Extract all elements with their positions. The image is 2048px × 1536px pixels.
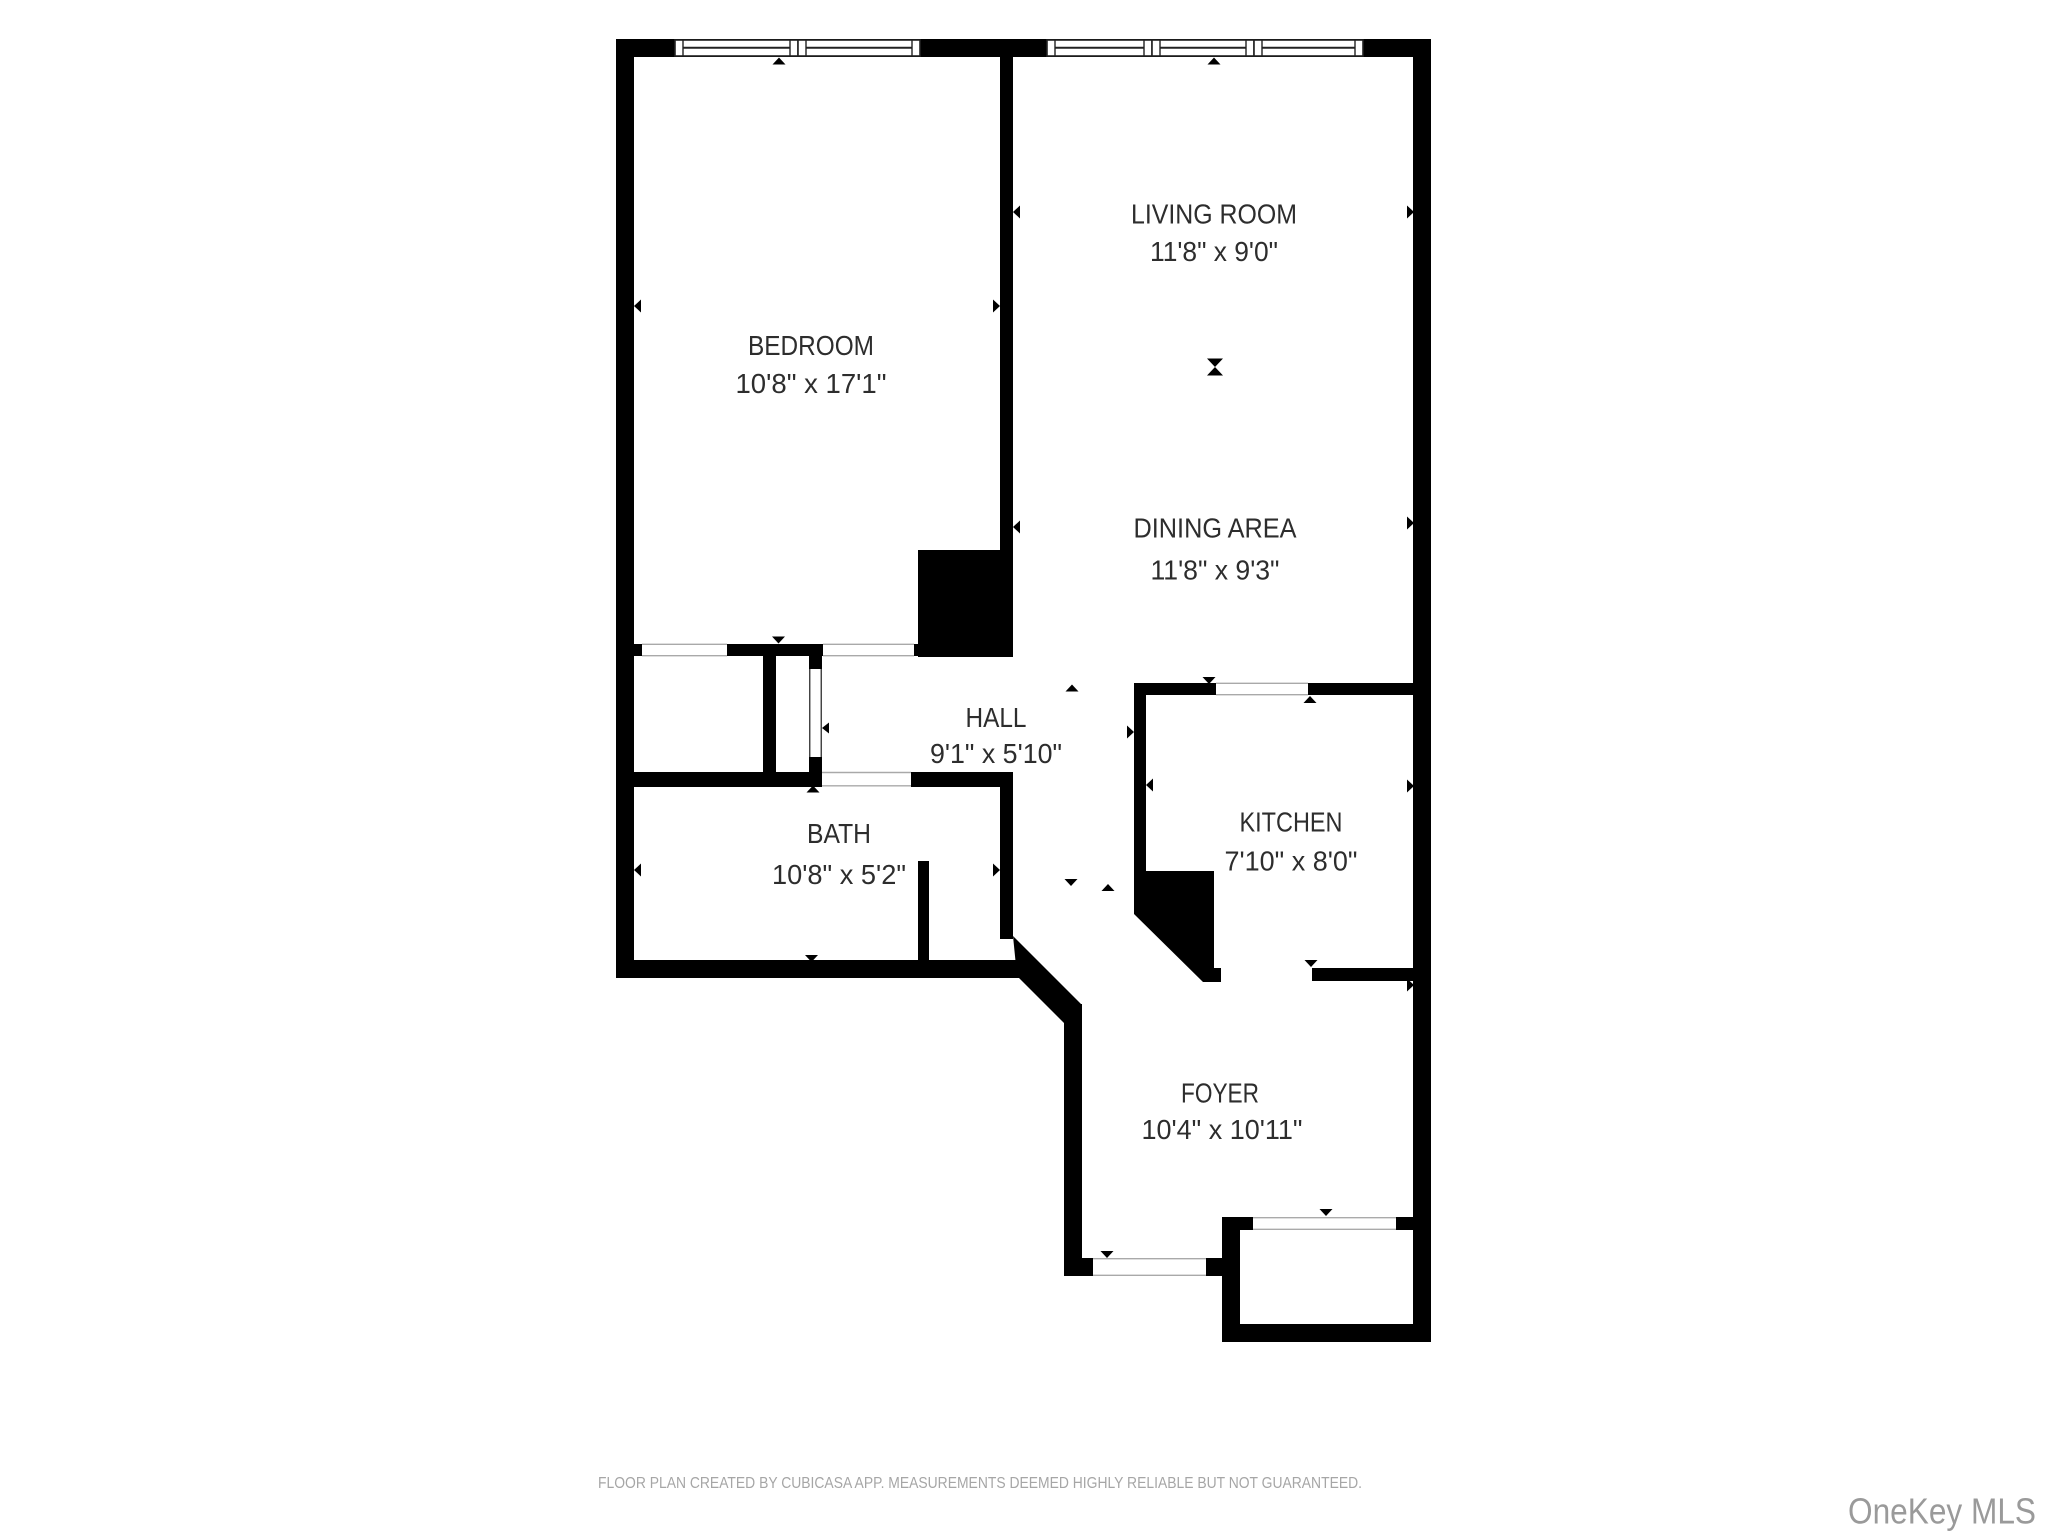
svg-text:10'8" x 5'2": 10'8" x 5'2" xyxy=(772,859,906,890)
svg-text:11'8" x 9'0": 11'8" x 9'0" xyxy=(1150,236,1278,267)
svg-text:FOYER: FOYER xyxy=(1181,1078,1259,1109)
svg-text:HALL: HALL xyxy=(966,702,1027,733)
svg-text:BATH: BATH xyxy=(807,818,871,849)
svg-text:FLOOR PLAN CREATED BY CUBICASA: FLOOR PLAN CREATED BY CUBICASA APP. MEAS… xyxy=(598,1475,1362,1492)
svg-text:BEDROOM: BEDROOM xyxy=(748,330,874,361)
svg-text:DINING AREA: DINING AREA xyxy=(1134,513,1297,544)
svg-text:KITCHEN: KITCHEN xyxy=(1240,807,1343,838)
svg-text:LIVING ROOM: LIVING ROOM xyxy=(1131,199,1297,230)
svg-text:10'4" x 10'11": 10'4" x 10'11" xyxy=(1142,1114,1303,1145)
svg-text:OneKey MLS: OneKey MLS xyxy=(1848,1491,2036,1532)
svg-text:11'8" x 9'3": 11'8" x 9'3" xyxy=(1151,555,1280,586)
svg-text:7'10" x 8'0": 7'10" x 8'0" xyxy=(1225,846,1358,877)
svg-text:10'8" x 17'1": 10'8" x 17'1" xyxy=(736,368,887,399)
svg-text:9'1" x 5'10": 9'1" x 5'10" xyxy=(930,738,1062,769)
